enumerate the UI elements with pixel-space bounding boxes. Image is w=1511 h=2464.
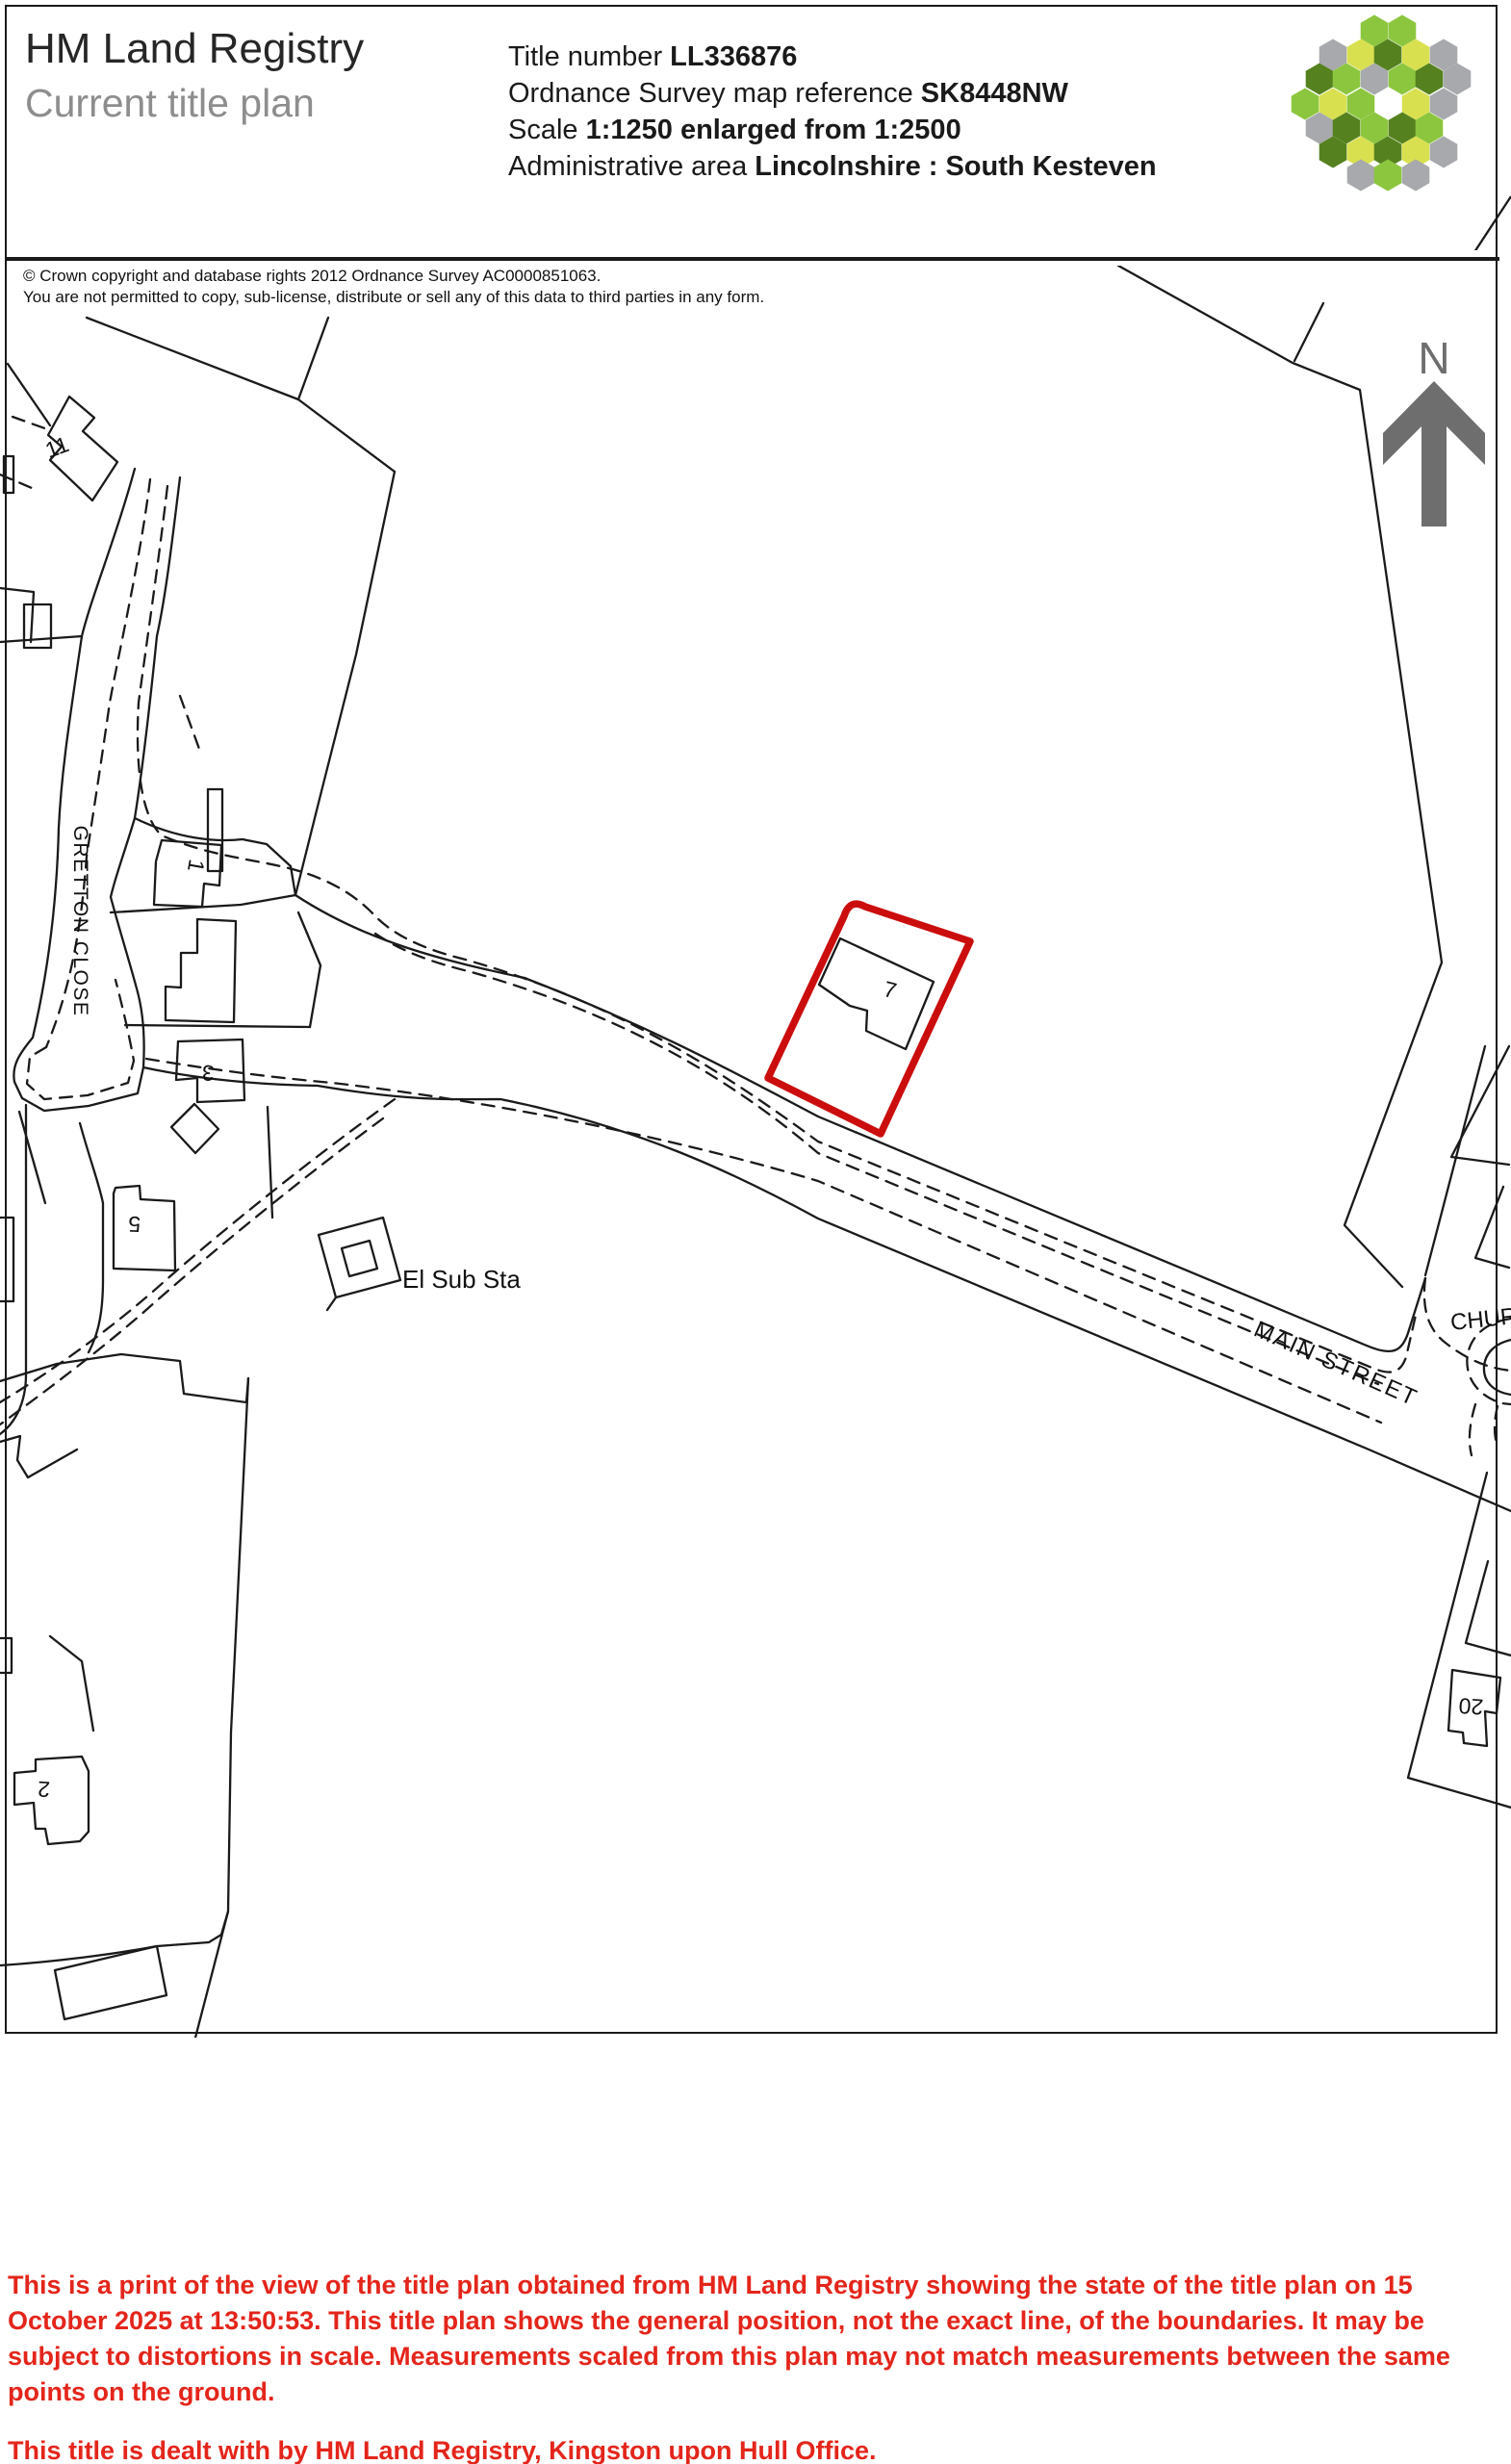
main-street-south-edge [143, 1067, 1511, 1511]
outbuilding-rect-outline [55, 1946, 166, 2019]
title-plan-map: N GRETTON CLOSE El Sub Sta MAIN STREET C… [0, 266, 1511, 2038]
north-arrow-icon [1383, 381, 1485, 526]
plot-3-label: 3 [201, 1060, 216, 1086]
plot-20-label: 20 [1458, 1693, 1484, 1720]
building-2-outline [14, 1757, 89, 1844]
building-7-outline [819, 938, 934, 1049]
north-letter: N [1418, 333, 1449, 383]
logo-hexagon [1402, 160, 1430, 192]
gretton-close-east-edge [111, 477, 180, 1067]
building-unnumbered-outline [166, 919, 236, 1022]
building-1-outline [154, 840, 221, 907]
building-5-outline [114, 1186, 175, 1270]
plot-2-label: 2 [38, 1777, 51, 1803]
church-label: CHURCH [1449, 1299, 1511, 1336]
el-sub-sta-label: El Sub Sta [402, 1265, 521, 1294]
gretton-close-label: GRETTON CLOSE [69, 826, 91, 1017]
plot-5-label: 5 [128, 1212, 141, 1237]
footer-office: This title is dealt with by HM Land Regi… [8, 2433, 1498, 2464]
north-arrow: N [1383, 333, 1485, 526]
parcel-boundaries-southeast [1408, 1473, 1511, 1808]
plot-1-label: 1 [183, 858, 210, 874]
header-separator [5, 257, 1499, 261]
outbuilding-diamond-outline [171, 1104, 218, 1153]
registered-title-parcel [768, 904, 970, 1134]
main-street-label: MAIN STREET [1250, 1317, 1421, 1412]
red-title-boundary [768, 904, 970, 1134]
plot-7-label: 7 [882, 976, 900, 1003]
map-boundary-diagonal [1471, 196, 1511, 250]
logo-hexagon [1374, 160, 1402, 192]
footer-disclaimer: This is a print of the view of the title… [8, 2268, 1498, 2410]
logo-hexagon [1347, 160, 1375, 192]
footer-notes: This is a print of the view of the title… [8, 2268, 1498, 2464]
el-sub-sta-structure [319, 1218, 400, 1310]
map-labels: GRETTON CLOSE El Sub Sta MAIN STREET CHU… [38, 431, 1511, 1802]
plot-11-label: 11 [42, 431, 72, 463]
hm-land-registry-logo-icon [0, 0, 1511, 250]
parcel-boundaries-southwest [0, 1105, 272, 2038]
title-plan-document: HM Land Registry Current title plan Titl… [0, 0, 1511, 2464]
